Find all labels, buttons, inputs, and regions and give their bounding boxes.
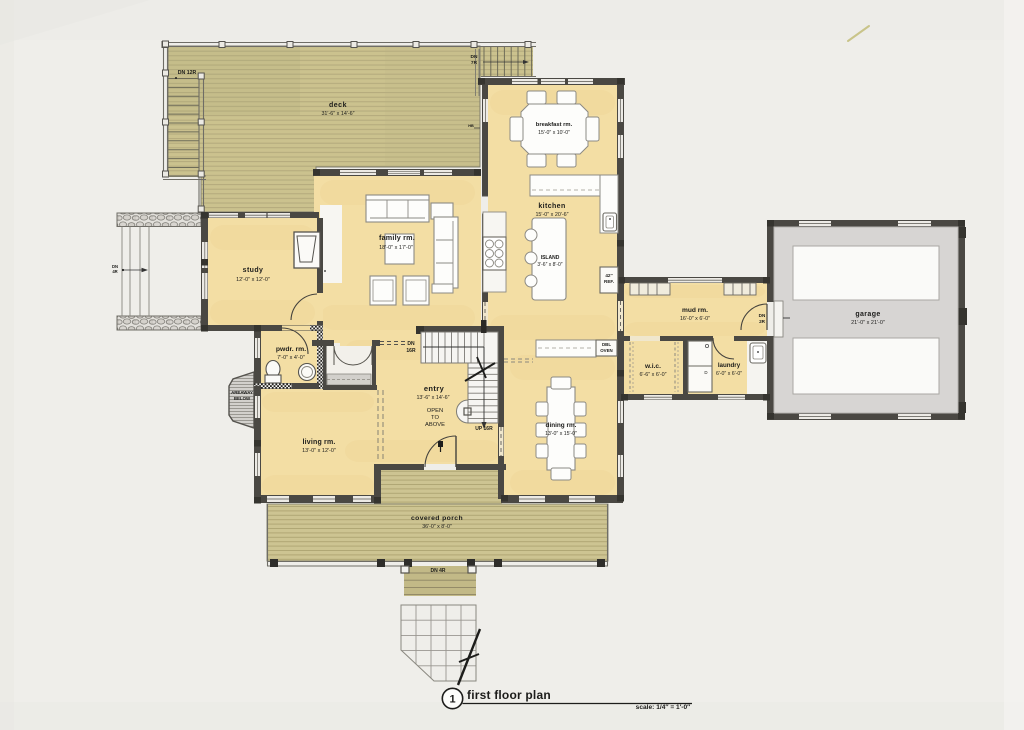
svg-text:entry: entry xyxy=(424,384,445,393)
svg-text:w.i.c.: w.i.c. xyxy=(644,363,661,370)
svg-text:DN 4R: DN 4R xyxy=(430,568,445,574)
svg-text:BELOW: BELOW xyxy=(234,396,251,401)
svg-text:DN: DN xyxy=(471,54,478,60)
svg-text:13′-6″ x 14′-6″: 13′-6″ x 14′-6″ xyxy=(416,395,449,401)
svg-text:deck: deck xyxy=(329,102,347,109)
svg-text:6′-6″ x 6′-0″: 6′-6″ x 6′-0″ xyxy=(639,372,666,378)
svg-text:DN: DN xyxy=(759,313,766,318)
svg-text:6′-0″ x 6′-0″: 6′-0″ x 6′-0″ xyxy=(716,371,742,377)
svg-text:OVEN: OVEN xyxy=(600,348,612,353)
svg-text:garage: garage xyxy=(855,311,880,318)
svg-text:scale: 1/4″ = 1′-0″: scale: 1/4″ = 1′-0″ xyxy=(636,704,691,711)
svg-text:covered porch: covered porch xyxy=(411,515,463,522)
svg-text:family rm.: family rm. xyxy=(379,233,415,242)
svg-text:DBL: DBL xyxy=(602,342,611,347)
svg-text:ISLAND: ISLAND xyxy=(541,255,560,261)
svg-text:dining rm.: dining rm. xyxy=(546,422,577,429)
svg-text:DN: DN xyxy=(407,341,415,347)
svg-text:15′-0″ x 10′-0″: 15′-0″ x 10′-0″ xyxy=(538,130,570,136)
svg-text:OPEN: OPEN xyxy=(427,408,443,414)
svg-text:2R: 2R xyxy=(759,319,766,324)
svg-text:REF.: REF. xyxy=(604,279,614,284)
svg-text:DN 12R: DN 12R xyxy=(178,70,197,76)
svg-text:13′-0″ x 12′-0″: 13′-0″ x 12′-0″ xyxy=(302,448,336,454)
svg-text:AREAWAY: AREAWAY xyxy=(231,390,253,395)
svg-text:laundry: laundry xyxy=(718,362,741,369)
svg-text:kitchen: kitchen xyxy=(538,203,565,210)
svg-text:21′-0″ x 21′-0″: 21′-0″ x 21′-0″ xyxy=(851,320,885,326)
svg-text:first floor plan: first floor plan xyxy=(467,688,551,702)
svg-text:breakfast rm.: breakfast rm. xyxy=(536,122,573,128)
svg-text:study: study xyxy=(243,267,264,274)
svg-text:7′-0″ x 4′-0″: 7′-0″ x 4′-0″ xyxy=(277,355,305,361)
svg-text:HB: HB xyxy=(468,124,474,128)
svg-text:ABOVE: ABOVE xyxy=(425,422,445,428)
svg-text:TO: TO xyxy=(431,415,439,421)
svg-text:15′-0″ x 20′-6″: 15′-0″ x 20′-6″ xyxy=(535,212,568,218)
svg-text:pwdr. rm.: pwdr. rm. xyxy=(276,346,306,353)
svg-text:16′-0″ x 6′-0″: 16′-0″ x 6′-0″ xyxy=(680,316,710,322)
svg-text:31′-6″ x 14′-6″: 31′-6″ x 14′-6″ xyxy=(321,111,354,117)
svg-text:mud rm.: mud rm. xyxy=(682,307,708,314)
svg-text:12′-0″ x 12′-0″: 12′-0″ x 12′-0″ xyxy=(236,277,270,283)
svg-text:UP 16R: UP 16R xyxy=(475,426,493,432)
svg-text:4R: 4R xyxy=(112,269,117,274)
svg-text:18′-0″ x 17′-0″: 18′-0″ x 17′-0″ xyxy=(379,245,413,251)
svg-text:D: D xyxy=(704,370,707,375)
svg-text:living rm.: living rm. xyxy=(302,439,335,446)
svg-text:7R: 7R xyxy=(471,60,478,66)
svg-text:3′-6″ x 8′-0″: 3′-6″ x 8′-0″ xyxy=(537,262,562,268)
svg-text:36′-0″ x 8′-0″: 36′-0″ x 8′-0″ xyxy=(422,524,452,530)
svg-text:1: 1 xyxy=(449,694,455,706)
svg-text:13′-0″ x 15′-0″: 13′-0″ x 15′-0″ xyxy=(545,431,577,437)
svg-text:16R: 16R xyxy=(406,348,416,354)
svg-text:42″: 42″ xyxy=(605,273,613,278)
